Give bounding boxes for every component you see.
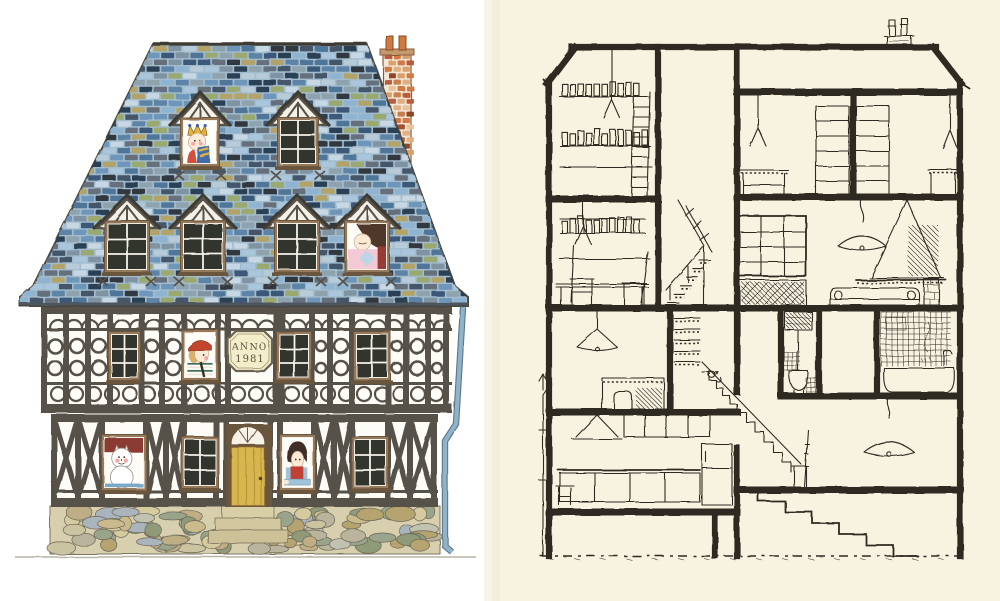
window-with-cat xyxy=(99,435,149,495)
chimney-pot xyxy=(386,36,393,50)
window xyxy=(351,332,393,385)
book-spread: ANNO 1981 xyxy=(0,0,1000,601)
window xyxy=(106,332,143,385)
sign-line-1: ANNO xyxy=(231,342,267,353)
window xyxy=(274,332,314,385)
dormer-window xyxy=(102,221,152,277)
page-gutter xyxy=(484,0,500,601)
chimney-pot xyxy=(399,36,406,50)
window xyxy=(179,437,221,493)
anno-sign: ANNO 1981 xyxy=(228,331,272,371)
window-with-watchman xyxy=(179,330,221,385)
window-with-queen xyxy=(342,221,392,277)
window-with-boy xyxy=(277,435,318,495)
window xyxy=(349,437,391,493)
dormer-window xyxy=(272,221,322,277)
sign-line-2: 1981 xyxy=(235,354,264,365)
dormer-window xyxy=(275,118,321,171)
door-knob xyxy=(258,476,262,480)
window-with-king xyxy=(178,118,222,171)
illustration-canvas: ANNO 1981 xyxy=(0,0,1000,601)
front-door xyxy=(226,424,272,507)
dormer-window xyxy=(178,221,228,277)
